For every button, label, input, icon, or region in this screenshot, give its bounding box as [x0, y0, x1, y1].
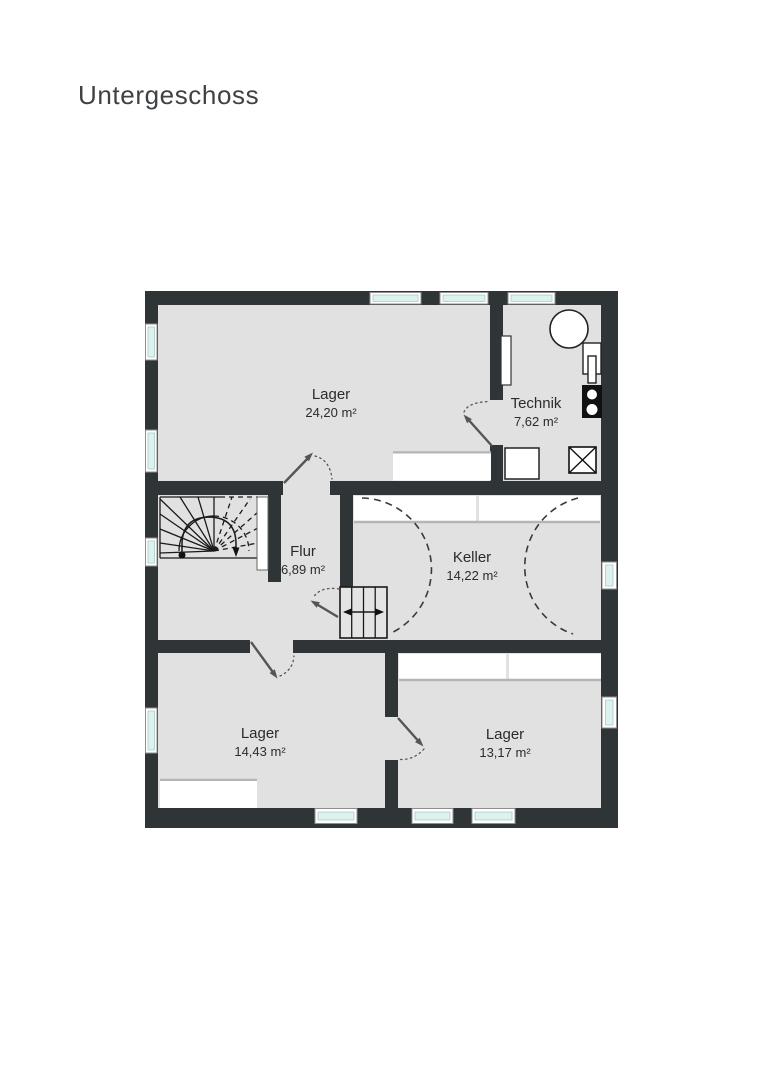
window-glass	[373, 295, 418, 302]
shaft-icon	[569, 447, 596, 473]
window-glass	[148, 433, 155, 469]
window-glass	[148, 711, 155, 750]
window-glass	[606, 700, 614, 725]
window	[412, 809, 453, 824]
room-area: 24,20 m²	[305, 405, 357, 420]
wall-segment	[158, 640, 250, 653]
floorplan-svg: Lager 24,20 m² Technik 7,62 m² Flur 6,89…	[0, 0, 763, 1080]
wall-segment	[330, 481, 601, 495]
wall-segment	[385, 760, 398, 808]
shelf	[399, 654, 506, 679]
tank-pipe-icon	[588, 356, 596, 383]
window	[146, 708, 158, 753]
window-glass	[318, 812, 354, 820]
stair-rail	[257, 497, 268, 570]
connection-dot-icon	[587, 390, 597, 400]
washing-machine-icon	[505, 448, 539, 479]
window	[315, 809, 357, 824]
room-name: Technik	[511, 395, 562, 412]
window	[146, 430, 158, 472]
room-name: Lager	[486, 726, 524, 743]
room-area: 6,89 m²	[281, 562, 326, 577]
room-name: Lager	[312, 386, 350, 403]
room-area: 14,43 m²	[234, 744, 286, 759]
window-glass	[511, 295, 552, 302]
window	[472, 809, 515, 824]
boiler-icon	[550, 310, 588, 348]
wall-segment	[490, 445, 503, 481]
room-name: Lager	[241, 725, 279, 742]
window	[370, 293, 421, 305]
wall-segment	[158, 481, 283, 495]
radiator-icon	[501, 336, 511, 385]
window-glass	[148, 327, 155, 357]
window-glass	[475, 812, 512, 820]
room-area: 13,17 m²	[479, 745, 531, 760]
wall-segment	[293, 640, 601, 653]
window	[440, 293, 488, 305]
window	[602, 562, 617, 589]
wall-segment	[385, 653, 398, 717]
wall-segment	[145, 808, 618, 828]
floor-area	[158, 305, 601, 808]
shelf	[479, 496, 600, 521]
window-glass	[148, 541, 155, 563]
basement-steps	[340, 587, 387, 638]
shelf	[160, 781, 257, 808]
room-area: 14,22 m²	[446, 568, 498, 583]
window	[602, 697, 617, 728]
window	[146, 538, 158, 566]
wall-segment	[268, 495, 281, 582]
window	[508, 293, 555, 305]
shelf	[354, 496, 476, 521]
shelf	[393, 454, 491, 481]
wall-segment	[601, 291, 618, 828]
wall-segment	[340, 495, 353, 587]
room-name: Flur	[290, 543, 316, 560]
window-glass	[443, 295, 485, 302]
window	[146, 324, 158, 360]
room-area: 7,62 m²	[514, 414, 559, 429]
window-glass	[606, 565, 614, 586]
window-glass	[415, 812, 450, 820]
connection-dot-icon	[587, 404, 598, 415]
room-name: Keller	[453, 549, 491, 566]
shelf	[509, 654, 601, 679]
page: Untergeschoss	[0, 0, 763, 1080]
